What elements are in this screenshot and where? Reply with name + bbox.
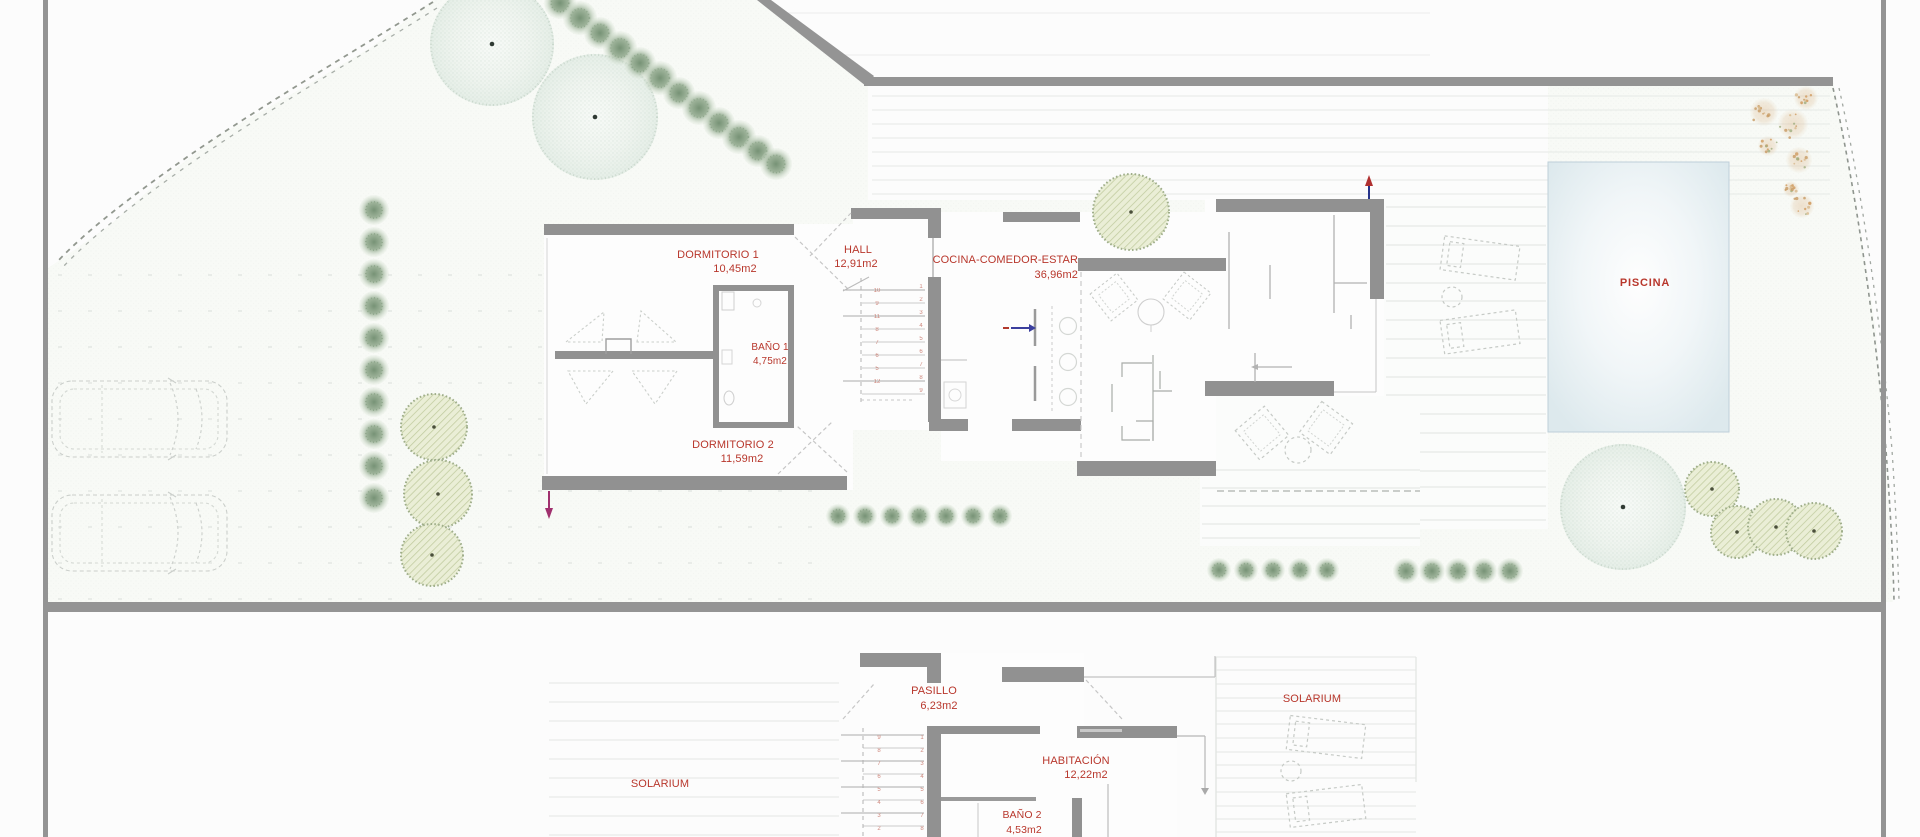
svg-text:COCINA-COMEDOR-ESTAR: COCINA-COMEDOR-ESTAR — [933, 254, 1078, 266]
svg-text:12,22m2: 12,22m2 — [1064, 769, 1108, 781]
svg-text:6,23m2: 6,23m2 — [920, 700, 957, 712]
svg-text:10: 10 — [874, 288, 881, 294]
svg-text:SOLARIUM: SOLARIUM — [631, 778, 689, 790]
svg-text:HABITACIÓN: HABITACIÓN — [1042, 754, 1109, 767]
svg-text:11,59m2: 11,59m2 — [721, 453, 764, 465]
svg-text:12,91m2: 12,91m2 — [834, 258, 878, 270]
svg-text:36,96m2: 36,96m2 — [1034, 269, 1078, 281]
svg-text:PISCINA: PISCINA — [1620, 277, 1670, 289]
svg-text:SOLARIUM: SOLARIUM — [1283, 693, 1341, 705]
svg-text:PASILLO: PASILLO — [911, 685, 957, 697]
svg-text:DORMITORIO 1: DORMITORIO 1 — [677, 249, 759, 261]
svg-text:DORMITORIO 2: DORMITORIO 2 — [692, 439, 774, 451]
svg-text:BAÑO 2: BAÑO 2 — [1002, 808, 1041, 821]
svg-text:11: 11 — [874, 314, 881, 320]
svg-text:BAÑO 1: BAÑO 1 — [751, 340, 789, 353]
svg-text:HALL: HALL — [844, 244, 872, 256]
svg-text:4,75m2: 4,75m2 — [753, 356, 787, 367]
svg-text:12: 12 — [874, 379, 881, 385]
svg-text:4,53m2: 4,53m2 — [1006, 824, 1042, 836]
svg-text:10,45m2: 10,45m2 — [713, 263, 757, 275]
